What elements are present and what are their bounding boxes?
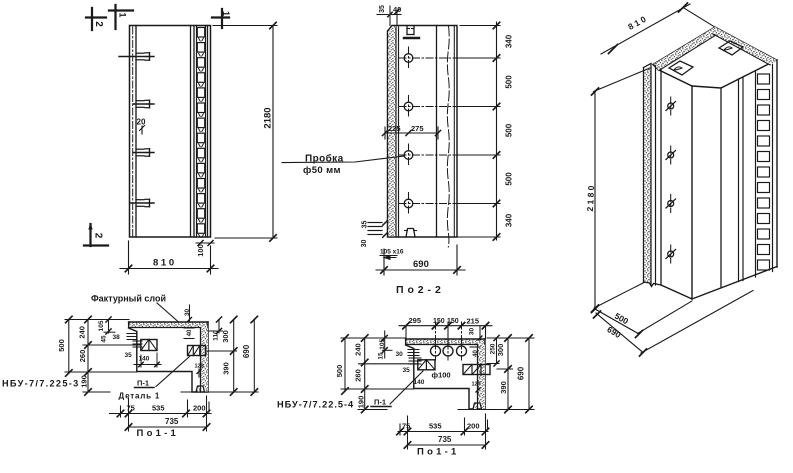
svg-text:190: 190 (80, 375, 89, 388)
svg-text:500: 500 (613, 311, 630, 327)
svg-text:690: 690 (242, 344, 251, 358)
svg-text:500: 500 (504, 172, 513, 186)
svg-text:45: 45 (100, 335, 107, 343)
svg-text:35: 35 (125, 352, 133, 359)
svg-text:35: 35 (403, 367, 411, 374)
svg-text:1: 1 (117, 12, 127, 17)
svg-text:15: 15 (377, 352, 384, 360)
svg-text:690: 690 (605, 324, 623, 340)
svg-text:390: 390 (499, 381, 508, 394)
svg-text:150: 150 (433, 318, 445, 325)
svg-text:500: 500 (504, 75, 513, 89)
svg-text:1: 1 (221, 11, 231, 16)
svg-text:300: 300 (221, 330, 230, 343)
svg-text:105: 105 (98, 320, 105, 331)
svg-text:П о 1 - 1: П о 1 - 1 (137, 428, 177, 439)
svg-text:340: 340 (504, 213, 513, 227)
svg-text:105: 105 (379, 338, 386, 349)
svg-text:240: 240 (354, 343, 363, 356)
svg-text:35: 35 (379, 5, 386, 13)
svg-text:40: 40 (473, 350, 479, 357)
svg-text:500: 500 (335, 365, 344, 378)
svg-text:735: 735 (438, 435, 452, 444)
svg-text:140: 140 (139, 356, 150, 363)
svg-text:2 1 8 0: 2 1 8 0 (585, 185, 596, 212)
svg-text:500: 500 (504, 123, 513, 137)
svg-text:690: 690 (413, 259, 429, 270)
svg-text:215: 215 (467, 317, 480, 326)
svg-text:8 1 0: 8 1 0 (153, 258, 174, 269)
svg-text:Деталь 1: Деталь 1 (119, 392, 161, 401)
svg-text:П о 2 - 2: П о 2 - 2 (396, 284, 441, 296)
svg-text:30: 30 (468, 328, 475, 336)
svg-text:275: 275 (411, 124, 424, 133)
svg-text:30: 30 (396, 351, 404, 358)
svg-text:190: 190 (357, 396, 366, 409)
svg-text:Фактурный слой: Фактурный слой (91, 294, 166, 304)
svg-text:535: 535 (152, 404, 165, 413)
svg-text:П-1: П-1 (374, 398, 386, 407)
svg-text:2: 2 (93, 21, 104, 27)
svg-text:150: 150 (447, 318, 459, 325)
svg-text:260: 260 (78, 350, 87, 363)
svg-text:40: 40 (187, 329, 193, 336)
svg-text:100: 100 (196, 244, 205, 257)
svg-text:295: 295 (409, 316, 422, 325)
svg-text:2: 2 (93, 233, 104, 239)
svg-text:35: 35 (361, 221, 368, 229)
svg-text:240: 240 (78, 326, 87, 339)
svg-text:ф50 мм: ф50 мм (303, 165, 341, 176)
svg-text:75: 75 (402, 422, 410, 431)
svg-text:140: 140 (414, 379, 425, 386)
svg-text:2180: 2180 (263, 107, 274, 128)
svg-text:30: 30 (361, 240, 368, 248)
svg-text:535: 535 (429, 422, 442, 431)
svg-text:200: 200 (467, 422, 480, 431)
svg-text:260: 260 (354, 369, 363, 382)
svg-text:Пробка: Пробка (305, 153, 344, 165)
svg-text:75: 75 (127, 404, 135, 413)
svg-text:ф100: ф100 (432, 371, 451, 380)
svg-text:НБУ-7/7.225-3: НБУ-7/7.225-3 (2, 379, 80, 389)
svg-text:НБУ-7/7.22.5-4: НБУ-7/7.22.5-4 (277, 400, 354, 410)
svg-text:П-1: П-1 (137, 379, 149, 388)
svg-text:225: 225 (388, 124, 401, 133)
svg-text:120: 120 (472, 382, 481, 388)
svg-text:300: 300 (496, 344, 505, 357)
svg-text:П о 1 - 1: П о 1 - 1 (417, 447, 457, 458)
svg-text:390: 390 (222, 362, 231, 375)
svg-text:500: 500 (57, 339, 66, 352)
svg-text:38: 38 (113, 334, 121, 341)
svg-text:110: 110 (212, 330, 219, 341)
svg-text:690: 690 (516, 366, 525, 380)
svg-text:340: 340 (504, 34, 513, 48)
svg-text:735: 735 (165, 417, 179, 426)
svg-text:200: 200 (193, 404, 206, 413)
